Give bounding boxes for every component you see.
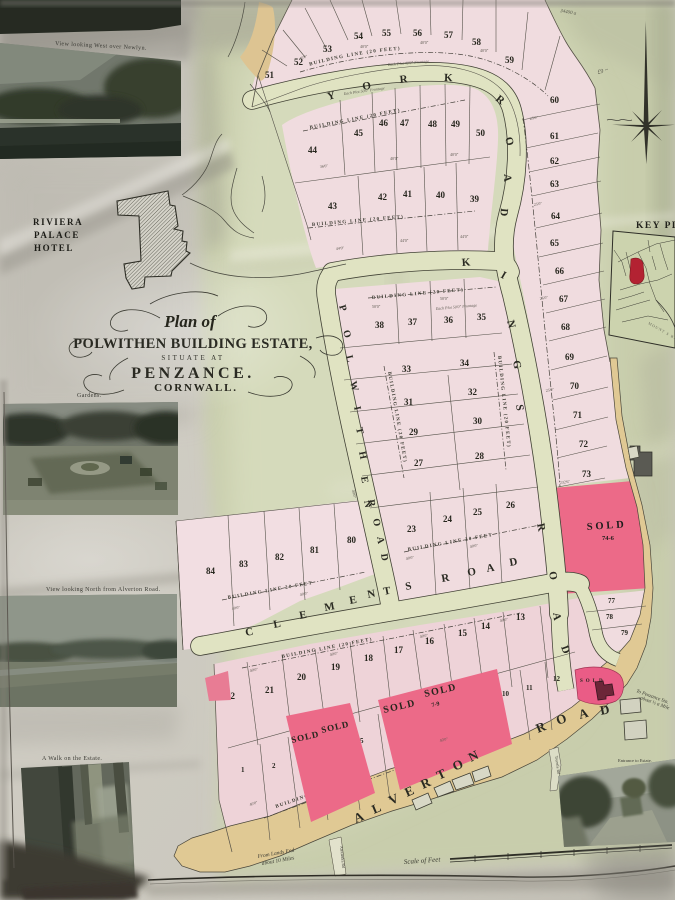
svg-text:54: 54 — [354, 31, 364, 41]
svg-text:20: 20 — [297, 672, 307, 682]
svg-text:82: 82 — [275, 552, 285, 562]
svg-text:Gardens.: Gardens. — [77, 393, 102, 399]
svg-text:44: 44 — [308, 145, 318, 155]
svg-text:50'0": 50'0" — [440, 296, 449, 301]
svg-text:21: 21 — [265, 685, 275, 695]
svg-text:47: 47 — [400, 118, 410, 128]
svg-text:31: 31 — [404, 397, 414, 407]
svg-text:10: 10 — [502, 690, 510, 698]
svg-text:CORNWALL.: CORNWALL. — [154, 382, 238, 394]
svg-text:28: 28 — [475, 451, 485, 461]
svg-text:A Walk on the Estate.: A Walk on the Estate. — [42, 756, 102, 762]
svg-text:81: 81 — [310, 545, 320, 555]
svg-text:65: 65 — [550, 238, 560, 248]
svg-text:24: 24 — [443, 514, 453, 524]
svg-text:40'0": 40'0" — [450, 152, 459, 157]
svg-text:49: 49 — [451, 119, 461, 129]
svg-text:D: D — [497, 208, 510, 217]
svg-text:PALACE: PALACE — [34, 230, 80, 240]
svg-text:69: 69 — [565, 352, 575, 362]
svg-text:POLWITHEN BUILDING ESTATE,: POLWITHEN BUILDING ESTATE, — [73, 336, 312, 352]
svg-text:59: 59 — [505, 55, 515, 65]
svg-text:58: 58 — [472, 37, 482, 47]
svg-text:26: 26 — [506, 500, 516, 510]
svg-text:60: 60 — [550, 95, 560, 105]
svg-text:40'0": 40'0" — [360, 44, 369, 49]
svg-text:74-6: 74-6 — [602, 535, 615, 542]
svg-text:43: 43 — [328, 201, 338, 211]
svg-text:40'0": 40'0" — [390, 156, 399, 161]
svg-text:62: 62 — [550, 156, 560, 166]
svg-text:35: 35 — [477, 312, 487, 322]
svg-text:RIVIERA: RIVIERA — [33, 217, 83, 227]
svg-text:37: 37 — [408, 317, 418, 327]
svg-text:40: 40 — [436, 190, 446, 200]
svg-text:17: 17 — [394, 645, 404, 655]
svg-text:84: 84 — [206, 566, 216, 576]
svg-text:D: D — [378, 553, 390, 562]
svg-text:83: 83 — [239, 559, 249, 569]
svg-text:72: 72 — [579, 439, 589, 449]
svg-text:41: 41 — [403, 189, 413, 199]
svg-text:Plan of: Plan of — [163, 312, 218, 331]
svg-text:11: 11 — [526, 684, 533, 692]
svg-text:45: 45 — [354, 128, 364, 138]
svg-text:30: 30 — [473, 416, 483, 426]
svg-text:66: 66 — [555, 266, 565, 276]
svg-text:64: 64 — [551, 211, 561, 221]
svg-text:48: 48 — [428, 119, 438, 129]
svg-text:25: 25 — [473, 507, 483, 517]
svg-text:HOTEL: HOTEL — [34, 243, 74, 253]
svg-text:80: 80 — [347, 535, 357, 545]
svg-text:SOLD: SOLD — [580, 679, 606, 684]
svg-text:44'0": 44'0" — [460, 234, 469, 239]
svg-text:K: K — [444, 72, 453, 84]
svg-text:78: 78 — [606, 613, 614, 621]
svg-text:2: 2 — [272, 762, 276, 770]
svg-text:36: 36 — [444, 315, 454, 325]
svg-text:77: 77 — [608, 597, 616, 605]
svg-text:SITUATE AT: SITUATE AT — [161, 354, 224, 362]
svg-text:71: 71 — [573, 410, 583, 420]
svg-text:23: 23 — [407, 524, 417, 534]
svg-text:15: 15 — [458, 628, 468, 638]
svg-text:A: A — [501, 174, 513, 182]
svg-text:19: 19 — [331, 662, 341, 672]
svg-text:46: 46 — [379, 118, 389, 128]
svg-text:View looking North from Alvert: View looking North from Alverton Road. — [46, 586, 161, 593]
svg-text:29: 29 — [409, 427, 419, 437]
svg-text:42: 42 — [378, 192, 388, 202]
svg-text:55: 55 — [382, 28, 392, 38]
svg-text:1: 1 — [241, 766, 245, 774]
svg-text:79: 79 — [621, 629, 629, 637]
svg-text:51: 51 — [265, 70, 275, 80]
svg-text:40'0": 40'0" — [480, 48, 489, 53]
svg-text:32: 32 — [468, 387, 478, 397]
svg-text:53: 53 — [323, 44, 333, 54]
svg-text:K: K — [461, 256, 471, 269]
svg-text:12: 12 — [553, 675, 561, 683]
svg-text:27: 27 — [414, 458, 424, 468]
svg-text:70: 70 — [570, 381, 580, 391]
svg-text:68: 68 — [561, 322, 571, 332]
svg-text:50'0": 50'0" — [372, 304, 381, 309]
svg-text:44'0": 44'0" — [400, 238, 409, 243]
svg-text:33: 33 — [402, 364, 412, 374]
svg-text:13: 13 — [516, 612, 526, 622]
svg-text:38: 38 — [375, 320, 385, 330]
svg-text:KEY PLAN: KEY PLAN — [636, 221, 675, 231]
svg-text:PENZANCE.: PENZANCE. — [131, 365, 255, 382]
svg-text:63: 63 — [550, 179, 560, 189]
svg-text:14: 14 — [481, 621, 491, 631]
svg-text:Entrance to Estate.: Entrance to Estate. — [618, 758, 652, 763]
svg-text:44'0": 44'0" — [336, 245, 345, 251]
svg-text:73: 73 — [582, 469, 592, 479]
svg-text:61: 61 — [550, 131, 560, 141]
svg-text:39: 39 — [470, 194, 480, 204]
svg-text:50: 50 — [476, 128, 486, 138]
svg-text:57: 57 — [444, 30, 454, 40]
svg-text:40'0": 40'0" — [420, 40, 429, 45]
svg-text:34: 34 — [460, 358, 470, 368]
svg-text:56: 56 — [413, 28, 423, 38]
svg-text:18: 18 — [364, 653, 374, 663]
svg-text:67: 67 — [559, 294, 569, 304]
